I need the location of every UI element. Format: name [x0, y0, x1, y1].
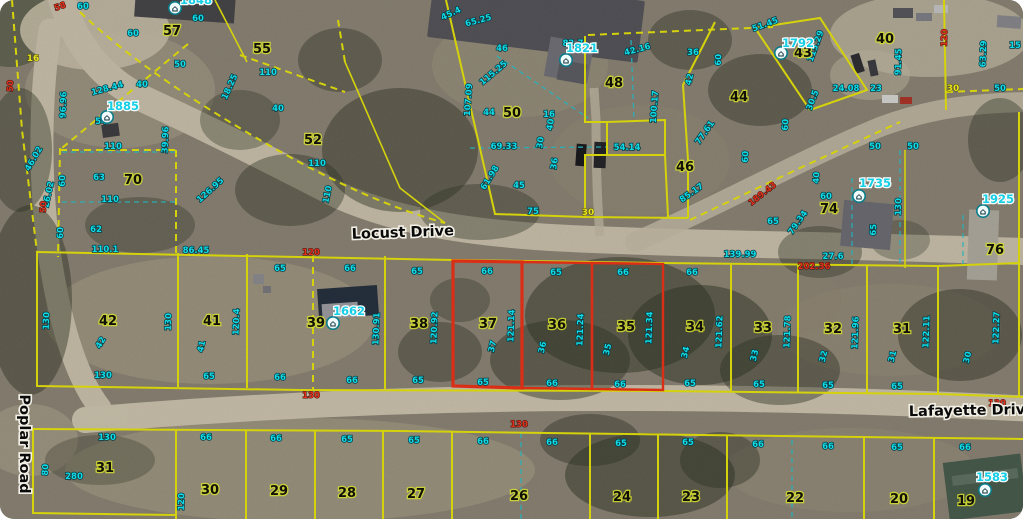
parcel-number-30: 30 — [201, 483, 219, 498]
dimension-label-130: 130 — [42, 312, 53, 330]
dimension-label-65: 65 — [341, 435, 353, 445]
dimension-label-60: 60 — [192, 14, 204, 24]
address-label-1792: 1792 — [782, 36, 814, 50]
red-dimension-label-202.36: 202.36 — [798, 262, 831, 272]
dimension-label-60: 60 — [781, 119, 792, 132]
dimension-label-36: 36 — [687, 48, 699, 58]
house-glyph: ⌂ — [563, 57, 570, 67]
address-label-1821: 1821 — [566, 41, 598, 55]
parcel-number-44: 44 — [730, 90, 748, 105]
dimension-label-40: 40 — [136, 80, 148, 90]
dimension-label-110: 110 — [308, 159, 326, 169]
dimension-label-50: 50 — [994, 84, 1006, 94]
dimension-label-110: 110 — [259, 68, 277, 78]
red-dimension-label-50: 50 — [39, 201, 49, 213]
yellow-dimension-label-30: 30 — [947, 84, 960, 94]
parcel-number-55: 55 — [253, 42, 271, 57]
dimension-label-65: 65 — [274, 264, 286, 274]
dimension-label-66: 66 — [344, 264, 356, 274]
dimension-label-110: 110 — [104, 142, 122, 152]
street-name-Poplar Road: Poplar Road — [16, 394, 32, 493]
parcel-number-39: 39 — [307, 316, 325, 331]
dimension-label-91.45: 91.45 — [894, 48, 905, 75]
dimension-label-40: 40 — [545, 118, 557, 131]
parcel-number-48: 48 — [605, 76, 623, 91]
dimension-label-46: 46 — [496, 44, 508, 54]
parcel-number-46: 46 — [676, 160, 694, 175]
dimension-label-66: 66 — [959, 443, 971, 453]
house-glyph: ⌂ — [104, 114, 111, 124]
parcel-number-38: 38 — [410, 317, 428, 332]
dimension-label-65: 65 — [408, 436, 420, 446]
dimension-label-66: 66 — [686, 268, 698, 278]
dimension-label-130: 130 — [894, 198, 905, 216]
dimension-label-75: 75 — [527, 207, 539, 217]
dimension-label-139.99: 139.99 — [724, 250, 757, 260]
dimension-label-122.27: 122.27 — [991, 311, 1002, 344]
parcel-number-74: 74 — [820, 202, 838, 217]
dimension-label-60: 60 — [56, 227, 66, 239]
parcel-number-42: 42 — [99, 314, 117, 329]
parcel-number-50: 50 — [503, 106, 521, 121]
house-glyph: ⌂ — [330, 320, 337, 330]
map-canvas[interactable]: 606060504011018.2596.96128.445411039.964… — [0, 0, 1023, 519]
house-glyph: ⌂ — [982, 487, 989, 497]
address-label-1735: 1735 — [859, 176, 891, 190]
dimension-label-66: 66 — [617, 268, 629, 278]
house-glyph: ⌂ — [856, 193, 863, 203]
parcel-number-37: 37 — [479, 317, 497, 332]
parcel-number-76: 76 — [986, 243, 1004, 258]
dimension-label-69.33: 69.33 — [491, 142, 518, 152]
dimension-label-60: 60 — [820, 192, 832, 202]
dimension-label-121.62: 121.62 — [714, 315, 725, 348]
dimension-label-121.34: 121.34 — [644, 311, 655, 344]
dimension-label-65: 65 — [891, 443, 903, 453]
dimension-label-66: 66 — [822, 442, 834, 452]
dimension-label-80: 80 — [41, 464, 52, 477]
dimension-label-65: 65 — [412, 376, 424, 386]
dimension-label-86.45: 86.45 — [183, 246, 210, 256]
parcel-number-26: 26 — [510, 489, 528, 504]
house-glyph: ⌂ — [980, 208, 987, 218]
dimension-label-60: 60 — [127, 29, 139, 39]
dimension-label-30: 30 — [535, 136, 547, 149]
dimension-label-121.14: 121.14 — [506, 309, 517, 342]
dimension-label-50: 50 — [907, 142, 919, 152]
photo-grain — [0, 0, 1023, 519]
dimension-label-65: 65 — [767, 217, 779, 227]
dimension-label-45: 45 — [513, 181, 525, 191]
dimension-label-24.08: 24.08 — [833, 84, 860, 94]
dimension-label-66: 66 — [546, 379, 558, 389]
dimension-label-66: 66 — [752, 440, 764, 450]
address-label-1885: 1885 — [107, 99, 139, 113]
dimension-label-60: 60 — [714, 54, 725, 67]
dimension-label-65: 65 — [411, 267, 423, 277]
dimension-label-66: 66 — [614, 380, 626, 390]
parcel-number-31: 31 — [893, 322, 911, 337]
red-dimension-label-130: 130 — [302, 391, 320, 401]
dimension-label-65: 65 — [822, 381, 834, 391]
dimension-label-54.14: 54.14 — [614, 143, 641, 153]
parcel-number-20: 20 — [890, 492, 908, 507]
dimension-label-40: 40 — [812, 172, 823, 185]
street-name-Lafayette Drive: Lafayette Drive — [909, 402, 1023, 420]
dimension-label-36: 36 — [549, 157, 561, 170]
parcel-number-32: 32 — [824, 322, 842, 337]
parcel-number-23: 23 — [682, 490, 700, 505]
parcel-number-28: 28 — [338, 486, 356, 501]
parcel-number-22: 22 — [786, 491, 804, 506]
dimension-label-65: 65 — [684, 379, 696, 389]
dimension-label-66: 66 — [546, 438, 558, 448]
parcel-number-33: 33 — [754, 321, 772, 336]
dimension-label-110.1: 110.1 — [92, 245, 119, 255]
address-label-1848: 1848 — [180, 0, 212, 7]
dimension-label-60: 60 — [741, 151, 752, 164]
dimension-label-66: 66 — [481, 267, 493, 277]
house-glyph: ⌂ — [778, 50, 785, 60]
dimension-label-65: 65 — [615, 439, 627, 449]
dimension-label-65: 65 — [753, 380, 765, 390]
dimension-label-50: 50 — [869, 142, 881, 152]
dimension-label-121.24: 121.24 — [575, 313, 586, 346]
dimension-label-39.96: 39.96 — [161, 126, 172, 153]
parcel-number-31: 31 — [96, 461, 114, 476]
dimension-label-60: 60 — [58, 175, 68, 187]
dimension-label-130: 130 — [98, 433, 116, 443]
yellow-dimension-label-16: 16 — [27, 54, 40, 64]
dimension-label-66: 66 — [346, 376, 358, 386]
dimension-label-66: 66 — [200, 433, 212, 443]
red-dimension-label-120: 120 — [940, 29, 951, 47]
dimension-label-50: 50 — [174, 60, 186, 70]
parcel-number-35: 35 — [617, 320, 635, 335]
dimension-label-65: 65 — [891, 382, 903, 392]
dimension-label-65: 65 — [869, 224, 880, 237]
dimension-label-62: 62 — [90, 225, 102, 235]
parcel-number-41: 41 — [203, 314, 221, 329]
dimension-label-63.29: 63.29 — [979, 40, 990, 67]
dimension-label-65: 65 — [477, 378, 489, 388]
dimension-label-65: 65 — [550, 268, 562, 278]
dimension-label-65: 65 — [203, 372, 215, 382]
dimension-label-65: 65 — [682, 438, 694, 448]
dimension-label-66: 66 — [274, 373, 286, 383]
aerial-parcel-map: 606060504011018.2596.96128.445411039.964… — [0, 0, 1023, 519]
dimension-label-66: 66 — [270, 434, 282, 444]
dimension-label-130.91: 130.91 — [371, 312, 382, 345]
dimension-label-121.96: 121.96 — [850, 316, 861, 349]
dimension-label-63: 63 — [93, 173, 105, 183]
parcel-number-40: 40 — [876, 32, 894, 47]
dimension-label-120.4: 120.4 — [232, 308, 243, 335]
dimension-label-96.96: 96.96 — [59, 91, 70, 118]
dimension-label-66: 66 — [477, 437, 489, 447]
parcel-number-19: 19 — [957, 494, 975, 509]
red-dimension-label-50: 50 — [6, 80, 16, 92]
dimension-label-120.92: 120.92 — [429, 311, 440, 344]
dimension-label-130: 130 — [94, 371, 112, 381]
parcel-number-70: 70 — [124, 173, 142, 188]
address-label-1583: 1583 — [976, 470, 1008, 484]
dimension-label-280: 280 — [65, 472, 83, 482]
parcel-number-52: 52 — [304, 133, 322, 148]
dimension-label-40: 40 — [272, 104, 284, 114]
dimension-label-44: 44 — [483, 108, 495, 118]
parcel-number-36: 36 — [548, 318, 566, 333]
parcel-number-27: 27 — [407, 487, 425, 502]
dimension-label-27.6: 27.6 — [823, 252, 844, 262]
address-label-1925: 1925 — [982, 192, 1014, 206]
dimension-label-130: 130 — [164, 313, 175, 331]
address-label-1662: 1662 — [333, 304, 365, 318]
parcel-number-29: 29 — [270, 484, 288, 499]
red-dimension-label-120: 120 — [302, 248, 320, 258]
parcel-number-34: 34 — [686, 320, 704, 335]
dimension-label-120: 120 — [177, 493, 188, 511]
dimension-label-121.78: 121.78 — [782, 315, 793, 348]
red-dimension-label-130: 130 — [510, 420, 528, 430]
parcel-number-24: 24 — [613, 490, 631, 505]
dimension-label-122.11: 122.11 — [921, 315, 932, 348]
dimension-label-110: 110 — [101, 195, 119, 205]
dimension-label-60: 60 — [77, 2, 89, 12]
parcel-number-57: 57 — [163, 24, 181, 39]
yellow-dimension-label-30: 30 — [582, 208, 595, 218]
dimension-label-23: 23 — [870, 84, 882, 94]
house-glyph: ⌂ — [172, 5, 179, 15]
dimension-label-15: 15 — [1009, 41, 1021, 51]
